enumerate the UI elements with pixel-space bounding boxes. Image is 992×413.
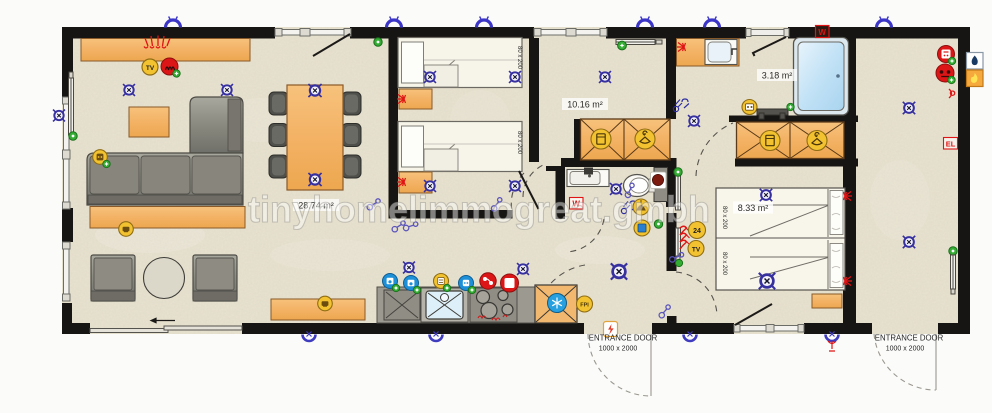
svg-text:EL: EL bbox=[946, 140, 956, 149]
svg-text:10.16 m²: 10.16 m² bbox=[567, 100, 603, 110]
svg-text:3.18 m²: 3.18 m² bbox=[762, 71, 793, 81]
svg-text:1000 x 2000: 1000 x 2000 bbox=[599, 346, 638, 353]
svg-text:80 x 200: 80 x 200 bbox=[516, 46, 522, 70]
svg-text:TV: TV bbox=[692, 247, 701, 254]
svg-text:FPI: FPI bbox=[580, 303, 589, 309]
svg-text:80 x 200: 80 x 200 bbox=[721, 252, 727, 276]
svg-text:ENTRANCE DOOR: ENTRANCE DOOR bbox=[875, 334, 944, 343]
svg-text:8.33 m²: 8.33 m² bbox=[738, 203, 769, 213]
svg-text:W: W bbox=[818, 28, 826, 37]
svg-text:TV: TV bbox=[146, 65, 155, 72]
svg-text:80 x 200: 80 x 200 bbox=[721, 206, 727, 230]
svg-text:80 x 200: 80 x 200 bbox=[516, 131, 522, 155]
svg-text:tinyhomelimmogreat.gmbh: tinyhomelimmogreat.gmbh bbox=[248, 189, 710, 230]
svg-text:ENTRANCE DOOR: ENTRANCE DOOR bbox=[589, 334, 658, 343]
svg-text:1000 x 2000: 1000 x 2000 bbox=[886, 346, 925, 353]
